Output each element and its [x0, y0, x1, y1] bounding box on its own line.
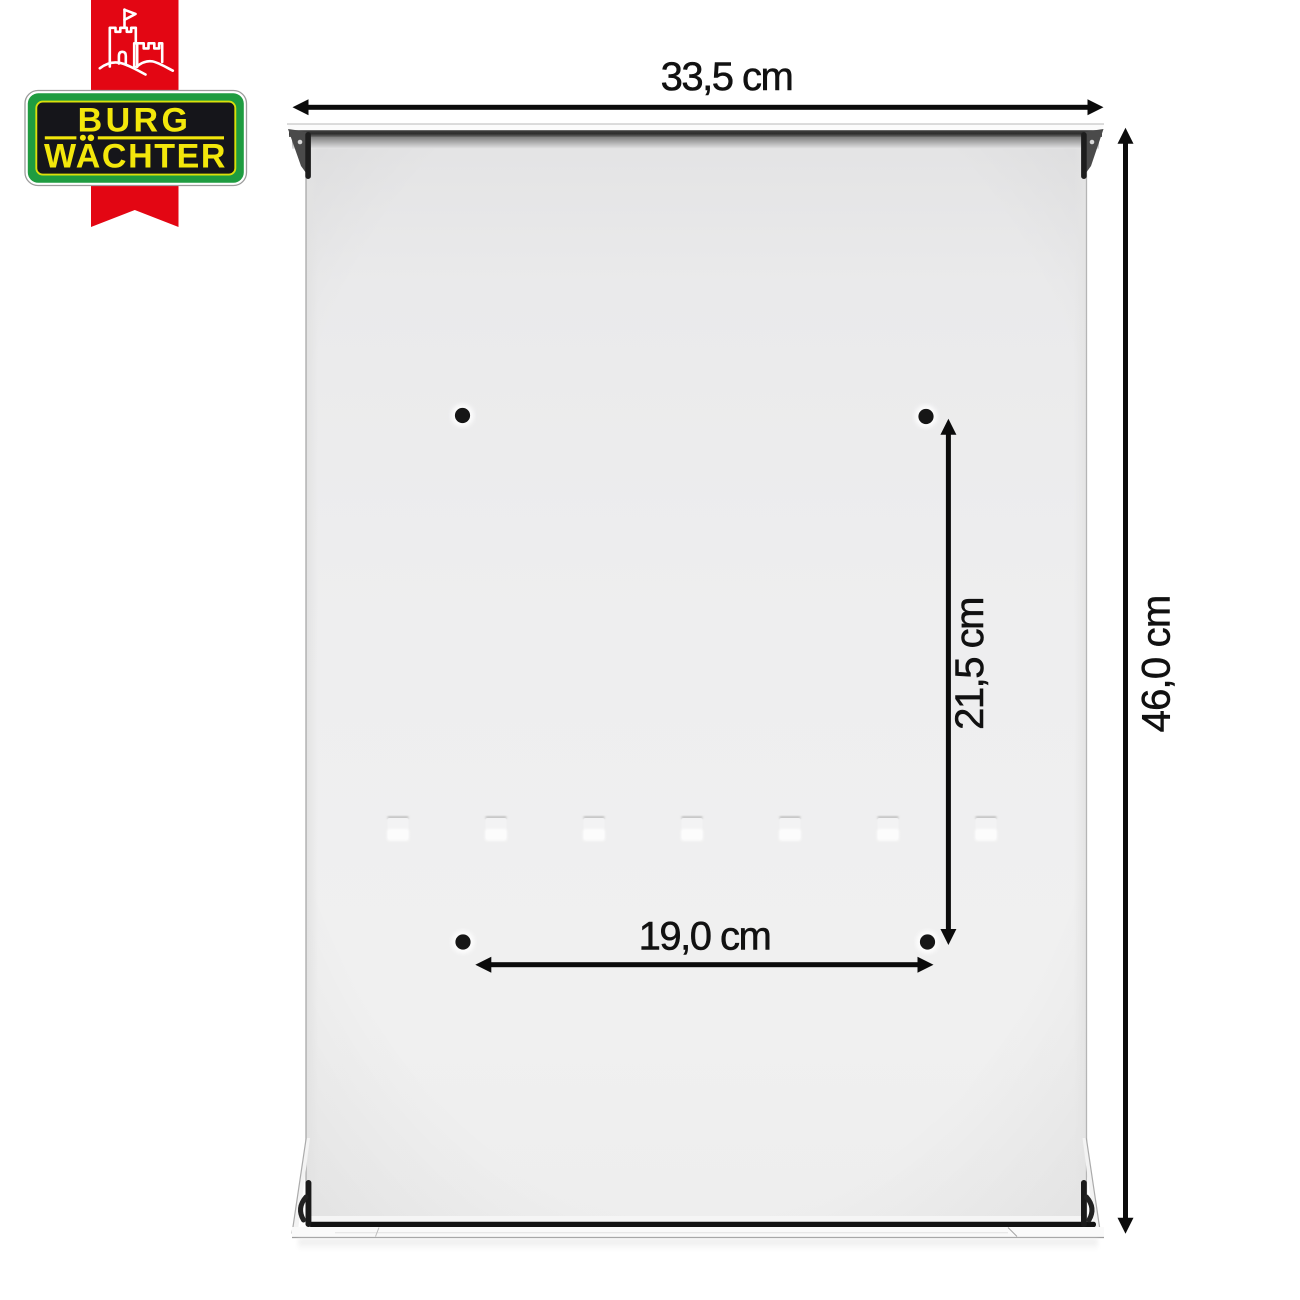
svg-text:21,5 cm: 21,5 cm [948, 598, 992, 730]
svg-text:33,5 cm: 33,5 cm [661, 55, 793, 99]
svg-text:BURG: BURG [78, 101, 192, 139]
svg-text:19,0 cm: 19,0 cm [639, 915, 771, 959]
svg-text:46,0 cm: 46,0 cm [1135, 596, 1179, 733]
svg-text:WACHTER: WACHTER [44, 138, 227, 176]
